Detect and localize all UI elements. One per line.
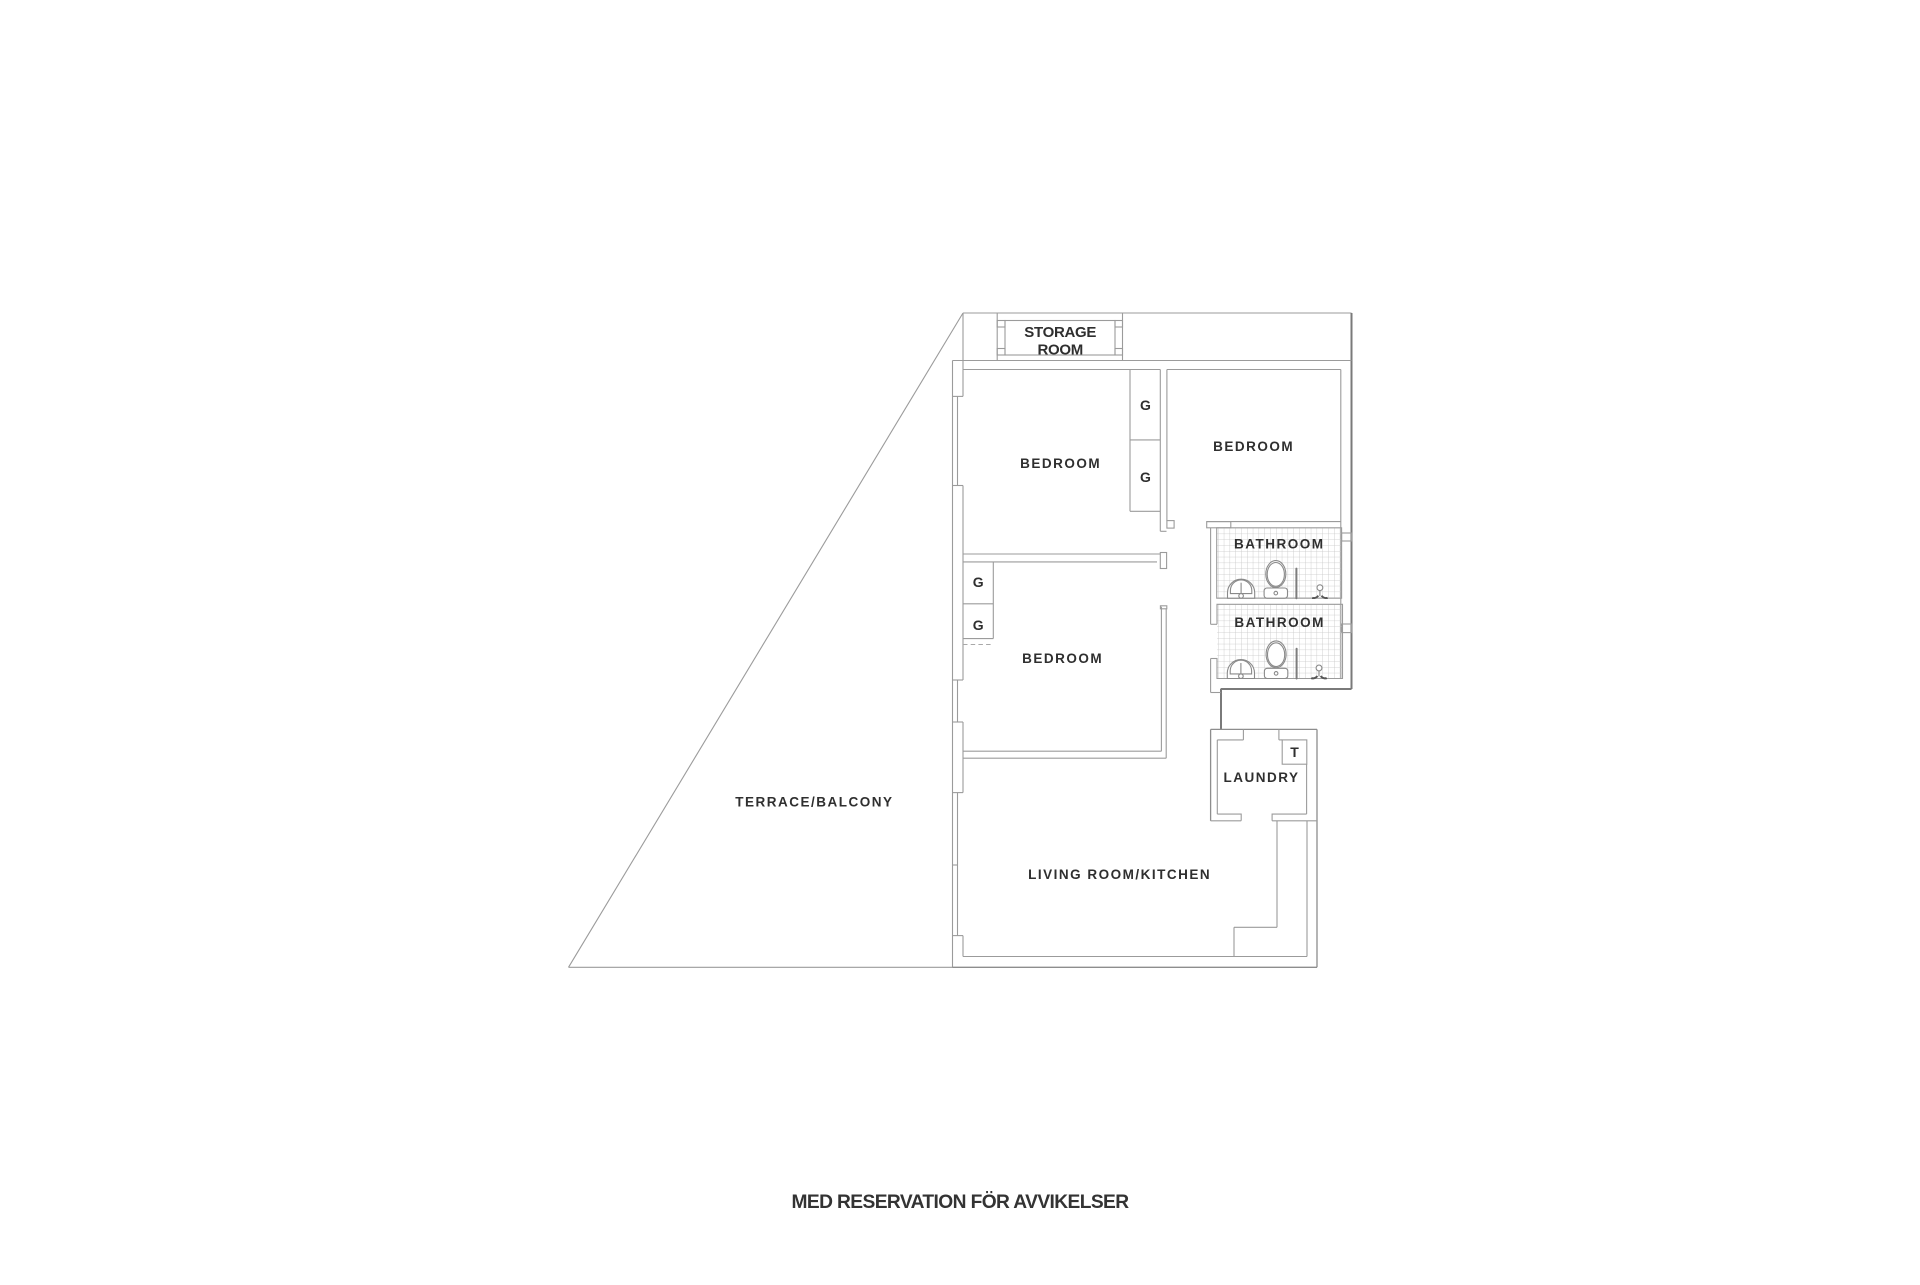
svg-text:BEDROOM: BEDROOM (1213, 439, 1294, 454)
svg-text:BEDROOM: BEDROOM (1020, 456, 1101, 471)
svg-text:BATHROOM: BATHROOM (1234, 615, 1325, 630)
svg-text:TERRACE/BALCONY: TERRACE/BALCONY (735, 795, 893, 810)
svg-text:ROOM: ROOM (1037, 342, 1082, 359)
svg-text:LIVING ROOM/KITCHEN: LIVING ROOM/KITCHEN (1028, 867, 1211, 882)
svg-text:BATHROOM: BATHROOM (1234, 537, 1325, 552)
svg-text:G: G (973, 574, 984, 590)
svg-text:MED RESERVATION FÖR AVVIKELSER: MED RESERVATION FÖR AVVIKELSER (791, 1192, 1129, 1213)
svg-text:G: G (1140, 469, 1151, 485)
svg-text:G: G (973, 617, 984, 633)
svg-text:LAUNDRY: LAUNDRY (1224, 770, 1300, 785)
svg-text:T: T (1290, 744, 1299, 760)
svg-text:G: G (1140, 397, 1151, 413)
svg-text:STORAGE: STORAGE (1024, 324, 1096, 341)
svg-text:BEDROOM: BEDROOM (1022, 651, 1103, 666)
